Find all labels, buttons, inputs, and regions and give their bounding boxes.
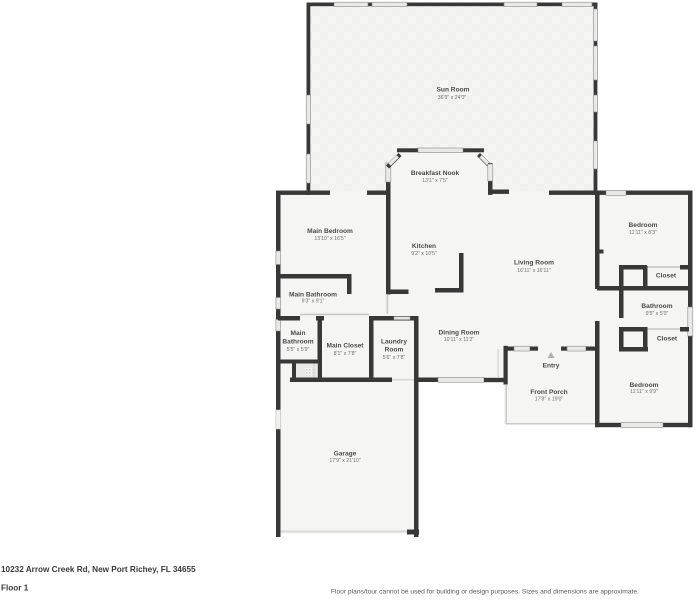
svg-text:Floor plans/tour cannot be use: Floor plans/tour cannot be used for buil… — [331, 589, 639, 596]
svg-text:Floor 1: Floor 1 — [1, 584, 29, 593]
svg-text:Bedroom: Bedroom — [629, 222, 658, 229]
svg-text:9'2" x 10'5": 9'2" x 10'5" — [411, 251, 437, 257]
svg-text:11'11" x 9'9": 11'11" x 9'9" — [630, 389, 658, 395]
svg-text:Bathroom: Bathroom — [641, 303, 672, 310]
svg-text:13'10" x 16'5": 13'10" x 16'5" — [314, 236, 345, 242]
svg-text:Kitchen: Kitchen — [412, 243, 436, 250]
svg-text:Front Porch: Front Porch — [530, 389, 567, 396]
svg-text:5'5" x 5'9": 5'5" x 5'9" — [287, 347, 310, 353]
svg-text:Breakfast Nook: Breakfast Nook — [411, 170, 460, 177]
svg-text:Closet: Closet — [657, 336, 678, 343]
svg-text:9'5" x 5'0": 9'5" x 5'0" — [646, 311, 669, 317]
svg-text:Laundry: Laundry — [381, 339, 407, 346]
svg-text:Main Bathroom: Main Bathroom — [289, 292, 337, 299]
svg-text:Dining Room: Dining Room — [438, 330, 479, 337]
svg-text:Main: Main — [290, 330, 305, 337]
svg-text:13'1" x 7'5": 13'1" x 7'5" — [422, 178, 448, 184]
svg-text:Entry: Entry — [543, 363, 560, 370]
svg-text:Main Closet: Main Closet — [326, 343, 364, 350]
svg-text:11'11" x 8'3": 11'11" x 8'3" — [629, 230, 657, 236]
svg-text:Bathroom: Bathroom — [282, 339, 313, 346]
svg-text:9'3" x 9'1": 9'3" x 9'1" — [302, 299, 325, 305]
svg-text:5'6" x 7'8": 5'6" x 7'8" — [383, 355, 406, 361]
svg-text:Sun Room: Sun Room — [437, 87, 470, 94]
svg-text:Main Bedroom: Main Bedroom — [307, 228, 353, 235]
svg-text:Room: Room — [385, 347, 404, 354]
svg-text:Garage: Garage — [334, 451, 357, 458]
svg-text:Closet: Closet — [656, 273, 677, 280]
svg-text:16'11" x 16'11": 16'11" x 16'11" — [517, 268, 551, 274]
svg-text:17'9" x 21'10": 17'9" x 21'10" — [329, 458, 360, 464]
svg-text:36'9" x 24'0": 36'9" x 24'0" — [438, 95, 467, 101]
svg-text:8'1" x 7'8": 8'1" x 7'8" — [334, 351, 357, 357]
svg-text:Living Room: Living Room — [514, 260, 554, 267]
svg-text:17'8" x 19'0": 17'8" x 19'0" — [535, 397, 564, 403]
svg-text:10232 Arrow Creek Rd, New Port: 10232 Arrow Creek Rd, New Port Richey, F… — [1, 565, 196, 574]
svg-text:10'11" x 11'2": 10'11" x 11'2" — [444, 337, 475, 343]
